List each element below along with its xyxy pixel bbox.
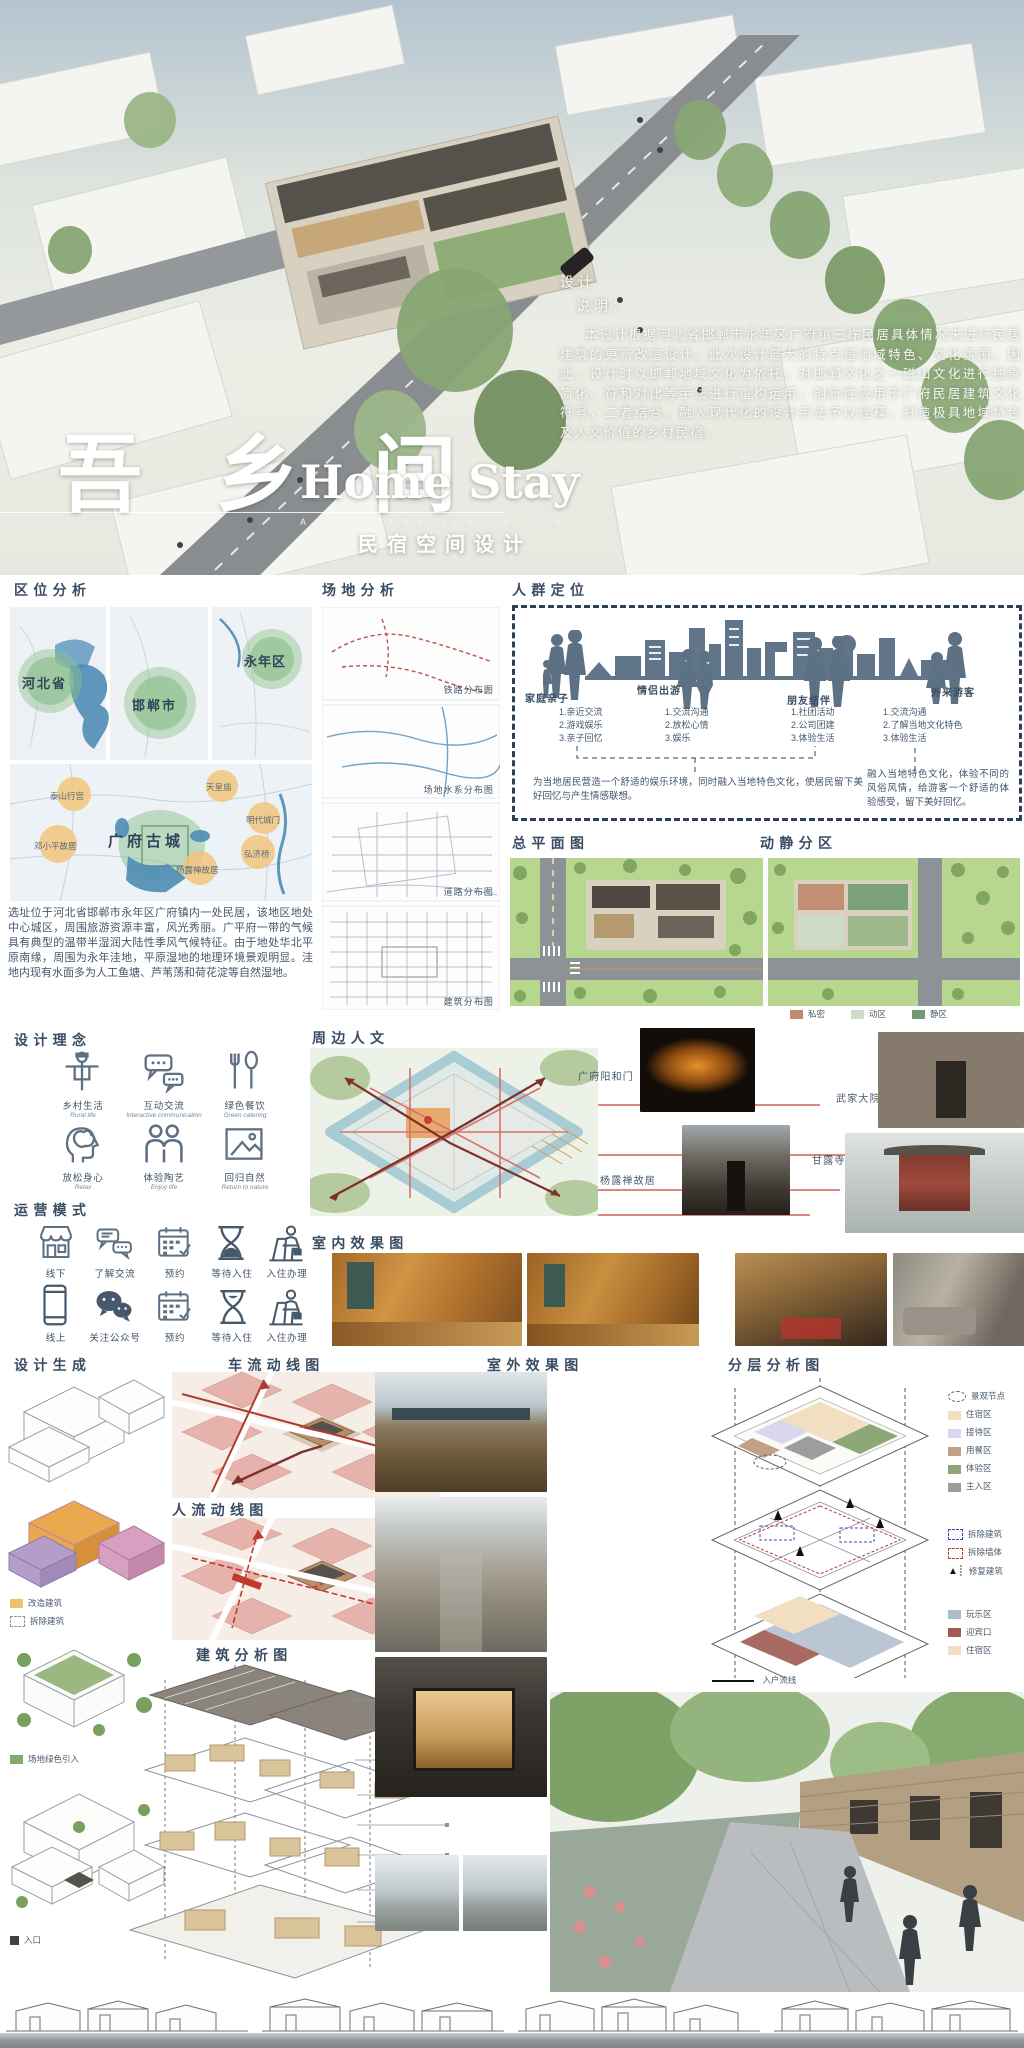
photo-floor: [527, 1324, 699, 1346]
section-heading-location: 区位分析: [14, 580, 91, 600]
photo-railing: [392, 1408, 530, 1420]
legend-swatch: [10, 1599, 23, 1608]
photo-path: [440, 1551, 481, 1652]
calendar-booking-icon: [156, 1224, 194, 1262]
courtyard-street-graphic: [550, 1692, 1024, 1992]
operation-step-label: 线上: [28, 1330, 84, 1344]
audience-box: 家庭亲子 情侣出游 朋友结伴 外来游客 1.亲近交流 2.游戏娱乐 3.亲子回忆…: [512, 605, 1022, 821]
hero-section: 吾 乡 间 Home Stay Accommodation in the 民宿空…: [0, 0, 1024, 575]
legend-play-zone: 玩乐区: [948, 1608, 1024, 1620]
photo-roof: [884, 1145, 984, 1155]
hourglass-icon: [216, 1288, 250, 1326]
list-item: 2.公司团建: [791, 719, 835, 732]
legend-swatch: [10, 1936, 19, 1945]
generation-legend-renovate: 改造建筑: [10, 1597, 64, 1609]
interior-photo-2: [527, 1253, 699, 1346]
elevation-drawings: [0, 1995, 1024, 2048]
legend-swatch: [10, 1616, 25, 1627]
list-item: 2.放松心情: [665, 719, 709, 732]
legend-swatch: [912, 1010, 925, 1019]
zoning-legend-private: 私密: [790, 1008, 825, 1020]
cutlery-icon: [222, 1050, 266, 1094]
legend-repair-building: ▲┊修复建筑: [948, 1565, 1024, 1577]
legend-swatch: [10, 1755, 23, 1764]
couple-silhouette-icon: [675, 648, 715, 710]
interior-photo-1: [332, 1253, 522, 1346]
photo-window: [347, 1262, 374, 1309]
mind-relax-icon: [60, 1122, 104, 1166]
interior-photo-3: [735, 1253, 887, 1346]
section-heading-concept: 设计理念: [14, 1030, 91, 1050]
zoning-legend: 私密 动区 静区: [790, 1008, 947, 1026]
audience-group-name-family: 家庭亲子: [525, 690, 569, 705]
legend-dining: 用餐区: [948, 1444, 1024, 1456]
culture-photo-yangluchan-house: [682, 1125, 790, 1215]
audience-group-name-tourists: 外来游客: [931, 684, 975, 699]
section-heading-masterplan: 总平面图: [512, 833, 589, 853]
zoning-legend-active: 动区: [851, 1008, 886, 1020]
scarecrow-icon: [60, 1050, 104, 1094]
operation-step-label: 等待入住: [204, 1330, 260, 1344]
legend-lodging-2: 住宿区: [948, 1644, 1024, 1656]
site-maps-column: 铁路分布图 场地水系分布图 道路分布图 建筑分布图: [322, 607, 500, 1010]
operation-step-label: 了解交流: [86, 1266, 144, 1280]
concept-item-interactive: 互动交流 Interactive communication: [118, 1098, 210, 1119]
section-heading-audience: 人群定位: [512, 580, 589, 600]
title-underline: [0, 512, 505, 513]
phone-icon: [40, 1284, 70, 1326]
operation-step-label: 预约: [148, 1330, 202, 1344]
poi-label-tianhuang: 天皇庙: [206, 781, 232, 793]
poster-subtitle-cn: 民宿空间设计: [358, 528, 532, 557]
design-note-title-2: 说明：: [576, 296, 1022, 316]
map-label-province: 河北省: [22, 673, 67, 692]
legend-landscape-node: 景观节点: [948, 1390, 1024, 1402]
culture-photo-ganlu-temple: [845, 1133, 1024, 1233]
masterplan-graphic: [510, 858, 763, 1006]
poi-map: 广府古城 泰山行宫 天皇庙 明代城门 弘济桥 杨露禅故居 邓小平故居: [10, 764, 312, 901]
concept-item-pottery: 体验陶艺 Enjoy life: [118, 1170, 210, 1191]
legend-demolish-building: 拆除建筑: [948, 1528, 1024, 1540]
poi-label-yangluchan: 杨露禅故居: [176, 864, 219, 876]
site-map-label-fabric: 建筑分布图: [444, 995, 494, 1008]
list-item: 3.体验生活: [791, 732, 835, 745]
poi-label-deng: 邓小平故居: [34, 840, 77, 852]
culture-caption-ganlu: 甘露寺: [812, 1152, 846, 1167]
legend-main-entry: 主入区: [948, 1480, 1024, 1492]
culture-aerial-graphic: [310, 1048, 598, 1216]
wechat-icon: [94, 1288, 134, 1324]
culture-aerial-diagram: [310, 1048, 598, 1216]
interior-photo-4: [893, 1253, 1024, 1346]
exterior-render-small-1: [375, 1855, 459, 1931]
masterplan-drawing: [510, 858, 763, 1006]
legend-reception: 接待区: [948, 1426, 1024, 1438]
concept-item-rural: 乡村生活 Rural life: [38, 1098, 128, 1119]
exterior-photo-terrace: [375, 1372, 547, 1492]
legend-welcome-entry: 迎宾口: [948, 1626, 1024, 1638]
list-item: 1.交流沟通: [883, 706, 963, 719]
zoning-graphic: [768, 858, 1020, 1006]
shop-icon: [36, 1222, 76, 1262]
poi-label-gate: 明代城门: [246, 814, 280, 826]
chat-bubbles-icon: [142, 1050, 186, 1094]
elevations-strip: [0, 1995, 1024, 2048]
section-heading-layers: 分层分析图: [728, 1355, 825, 1375]
photo-rug: [781, 1318, 842, 1338]
concept-item-nature: 回归自然 Return to nature: [200, 1170, 290, 1191]
photo-window: [544, 1264, 565, 1307]
legend-swatch: [790, 1010, 803, 1019]
map-label-city: 邯郸市: [132, 695, 177, 714]
list-item: 3.亲子回忆: [559, 732, 603, 745]
checkin-concierge-icon: [266, 1288, 306, 1326]
zoning-drawing: [768, 858, 1020, 1006]
concept-item-green: 绿色餐饮 Green catering: [200, 1098, 290, 1119]
two-people-icon: [142, 1122, 186, 1166]
concept-item-relax: 放松身心 Relax: [38, 1170, 128, 1191]
list-item: 2.游戏娱乐: [559, 719, 603, 732]
list-item: 1.社团活动: [791, 706, 835, 719]
list-item: 2.了解当地文化特色: [883, 719, 963, 732]
generation-entry-label: 入口: [10, 1934, 41, 1946]
culture-photo-wujia-courtyard: [878, 1032, 1024, 1128]
photo-doorway: [727, 1161, 744, 1211]
list-item: 3.体验生活: [883, 732, 963, 745]
poi-center-label: 广府古城: [108, 830, 184, 851]
design-note-title-1: 设计: [560, 272, 1022, 292]
audience-list-couple: 1.交流沟通 2.放松心情 3.娱乐: [665, 706, 709, 745]
legend-experience: 体验区: [948, 1462, 1024, 1474]
operation-step-label: 预约: [148, 1266, 202, 1280]
generation-legend-green: 场地绿色引入: [10, 1753, 79, 1765]
photo-sofa: [903, 1307, 975, 1335]
audience-list-tourists: 1.交流沟通 2.了解当地文化特色 3.体验生活: [883, 706, 963, 745]
generation-step-2-program: [4, 1488, 166, 1592]
list-item: 1.交流沟通: [665, 706, 709, 719]
audience-group-name-friends: 朋友结伴: [787, 692, 831, 707]
section-heading-interior: 室内效果图: [312, 1233, 409, 1253]
location-paragraph: 选址位于河北省邯郸市永年区广府镇内一处民居，该地区地处中心城区，周围旅游资源丰富…: [8, 906, 313, 981]
city-skyline-icon: [585, 618, 955, 686]
discuss-chat-icon: [96, 1226, 134, 1260]
operation-step-label: 入住办理: [260, 1266, 314, 1280]
legend-swatch: [851, 1010, 864, 1019]
location-maps-row: 河北省 邯郸市 永年区: [10, 607, 312, 760]
culture-photo-yanghe-gate: [640, 1028, 755, 1112]
photo-pavilion: [899, 1151, 971, 1211]
site-map-label-water: 场地水系分布图: [423, 783, 494, 796]
courtyard-street-photo: [550, 1692, 1024, 1992]
hourglass-icon: [214, 1224, 248, 1262]
exterior-render-small-2: [463, 1855, 547, 1931]
photo-doorway: [936, 1061, 965, 1119]
design-note: 设计 说明： 本设计根据河北省邯郸市永年区广府镇三栋民居具体情况来进行民居建筑的…: [560, 272, 1022, 443]
layer-bottom-legend: 玩乐区 迎宾口 住宿区: [948, 1608, 1024, 1662]
audience-summary-left: 为当地居民营造一个舒适的娱乐环境，同时融入当地特色文化，使居民留下美好回忆与产生…: [533, 776, 863, 804]
poi-label-taishan: 泰山行宫: [50, 790, 84, 802]
site-map-label-road: 道路分布图: [444, 885, 494, 898]
exterior-photo-night-window: [375, 1657, 547, 1797]
audience-list-family: 1.亲近交流 2.游戏娱乐 3.亲子回忆: [559, 706, 603, 745]
section-heading-zoning: 动静分区: [760, 833, 837, 853]
calendar-booking-icon: [156, 1288, 194, 1326]
section-heading-operation: 运营模式: [14, 1200, 91, 1220]
generation-step-1-massing: [4, 1372, 166, 1484]
culture-caption-yangluchan: 杨露禅故居: [600, 1172, 656, 1187]
audience-list-friends: 1.社团活动 2.公司团建 3.体验生活: [791, 706, 835, 745]
section-heading-people-flow: 人流动线图: [172, 1500, 269, 1520]
culture-caption-wujia: 武家大院: [836, 1090, 881, 1105]
generation-legend-demolish: 拆除建筑: [10, 1615, 64, 1627]
list-item: 3.娱乐: [665, 732, 709, 745]
section-heading-site: 场地分析: [322, 580, 399, 600]
entry-flow-legend: 入户流线: [712, 1674, 796, 1686]
generation-legend: 改造建筑 拆除建筑: [10, 1597, 64, 1633]
site-map-label-rail: 铁路分布图: [444, 683, 494, 696]
design-note-paragraph: 本设计根据河北省邯郸市永年区广府镇三栋民居具体情况来进行民居建筑的更新改造设计。…: [560, 326, 1022, 443]
operation-step-label: 线下: [28, 1266, 84, 1280]
exterior-photo-alley: [375, 1497, 547, 1652]
culture-caption-gate: 广府阳和门: [578, 1068, 634, 1083]
operation-step-label: 等待入住: [204, 1266, 260, 1280]
list-item: 1.亲近交流: [559, 706, 603, 719]
nature-picture-icon: [222, 1122, 266, 1166]
audience-group-name-couple: 情侣出游: [637, 682, 681, 697]
photo-lit-window: [413, 1688, 515, 1771]
poster-board: 吾 乡 间 Home Stay Accommodation in the 民宿空…: [0, 0, 1024, 2048]
legend-lodging: 住宿区: [948, 1408, 1024, 1420]
photo-floor: [332, 1322, 522, 1346]
poster-title-en: Home Stay: [300, 455, 579, 509]
operation-step-label: 关注公众号: [84, 1330, 146, 1344]
poster-subtitle-en: Accommodation in the: [300, 517, 569, 527]
map-label-district: 永年区: [244, 651, 286, 670]
layer-analysis-drawing: [700, 1378, 940, 1678]
layer-mark-legend: 拆除建筑 拆除墙体 ▲┊修复建筑: [948, 1528, 1024, 1583]
site-maps-graphic: [322, 607, 500, 1010]
operation-step-label: 入住办理: [260, 1330, 314, 1344]
legend-demolish-wall: 拆除墙体: [948, 1546, 1024, 1558]
audience-summary-right: 融入当地特色文化，体验不同的风俗风情，给游客一个舒适的体验感受，留下美好回忆。: [867, 768, 1009, 810]
poi-label-hongji: 弘济桥: [244, 848, 270, 860]
layer-zone-legend: 景观节点 住宿区 接待区 用餐区 体验区 主入区: [948, 1390, 1024, 1498]
zoning-legend-quiet: 静区: [912, 1008, 947, 1020]
